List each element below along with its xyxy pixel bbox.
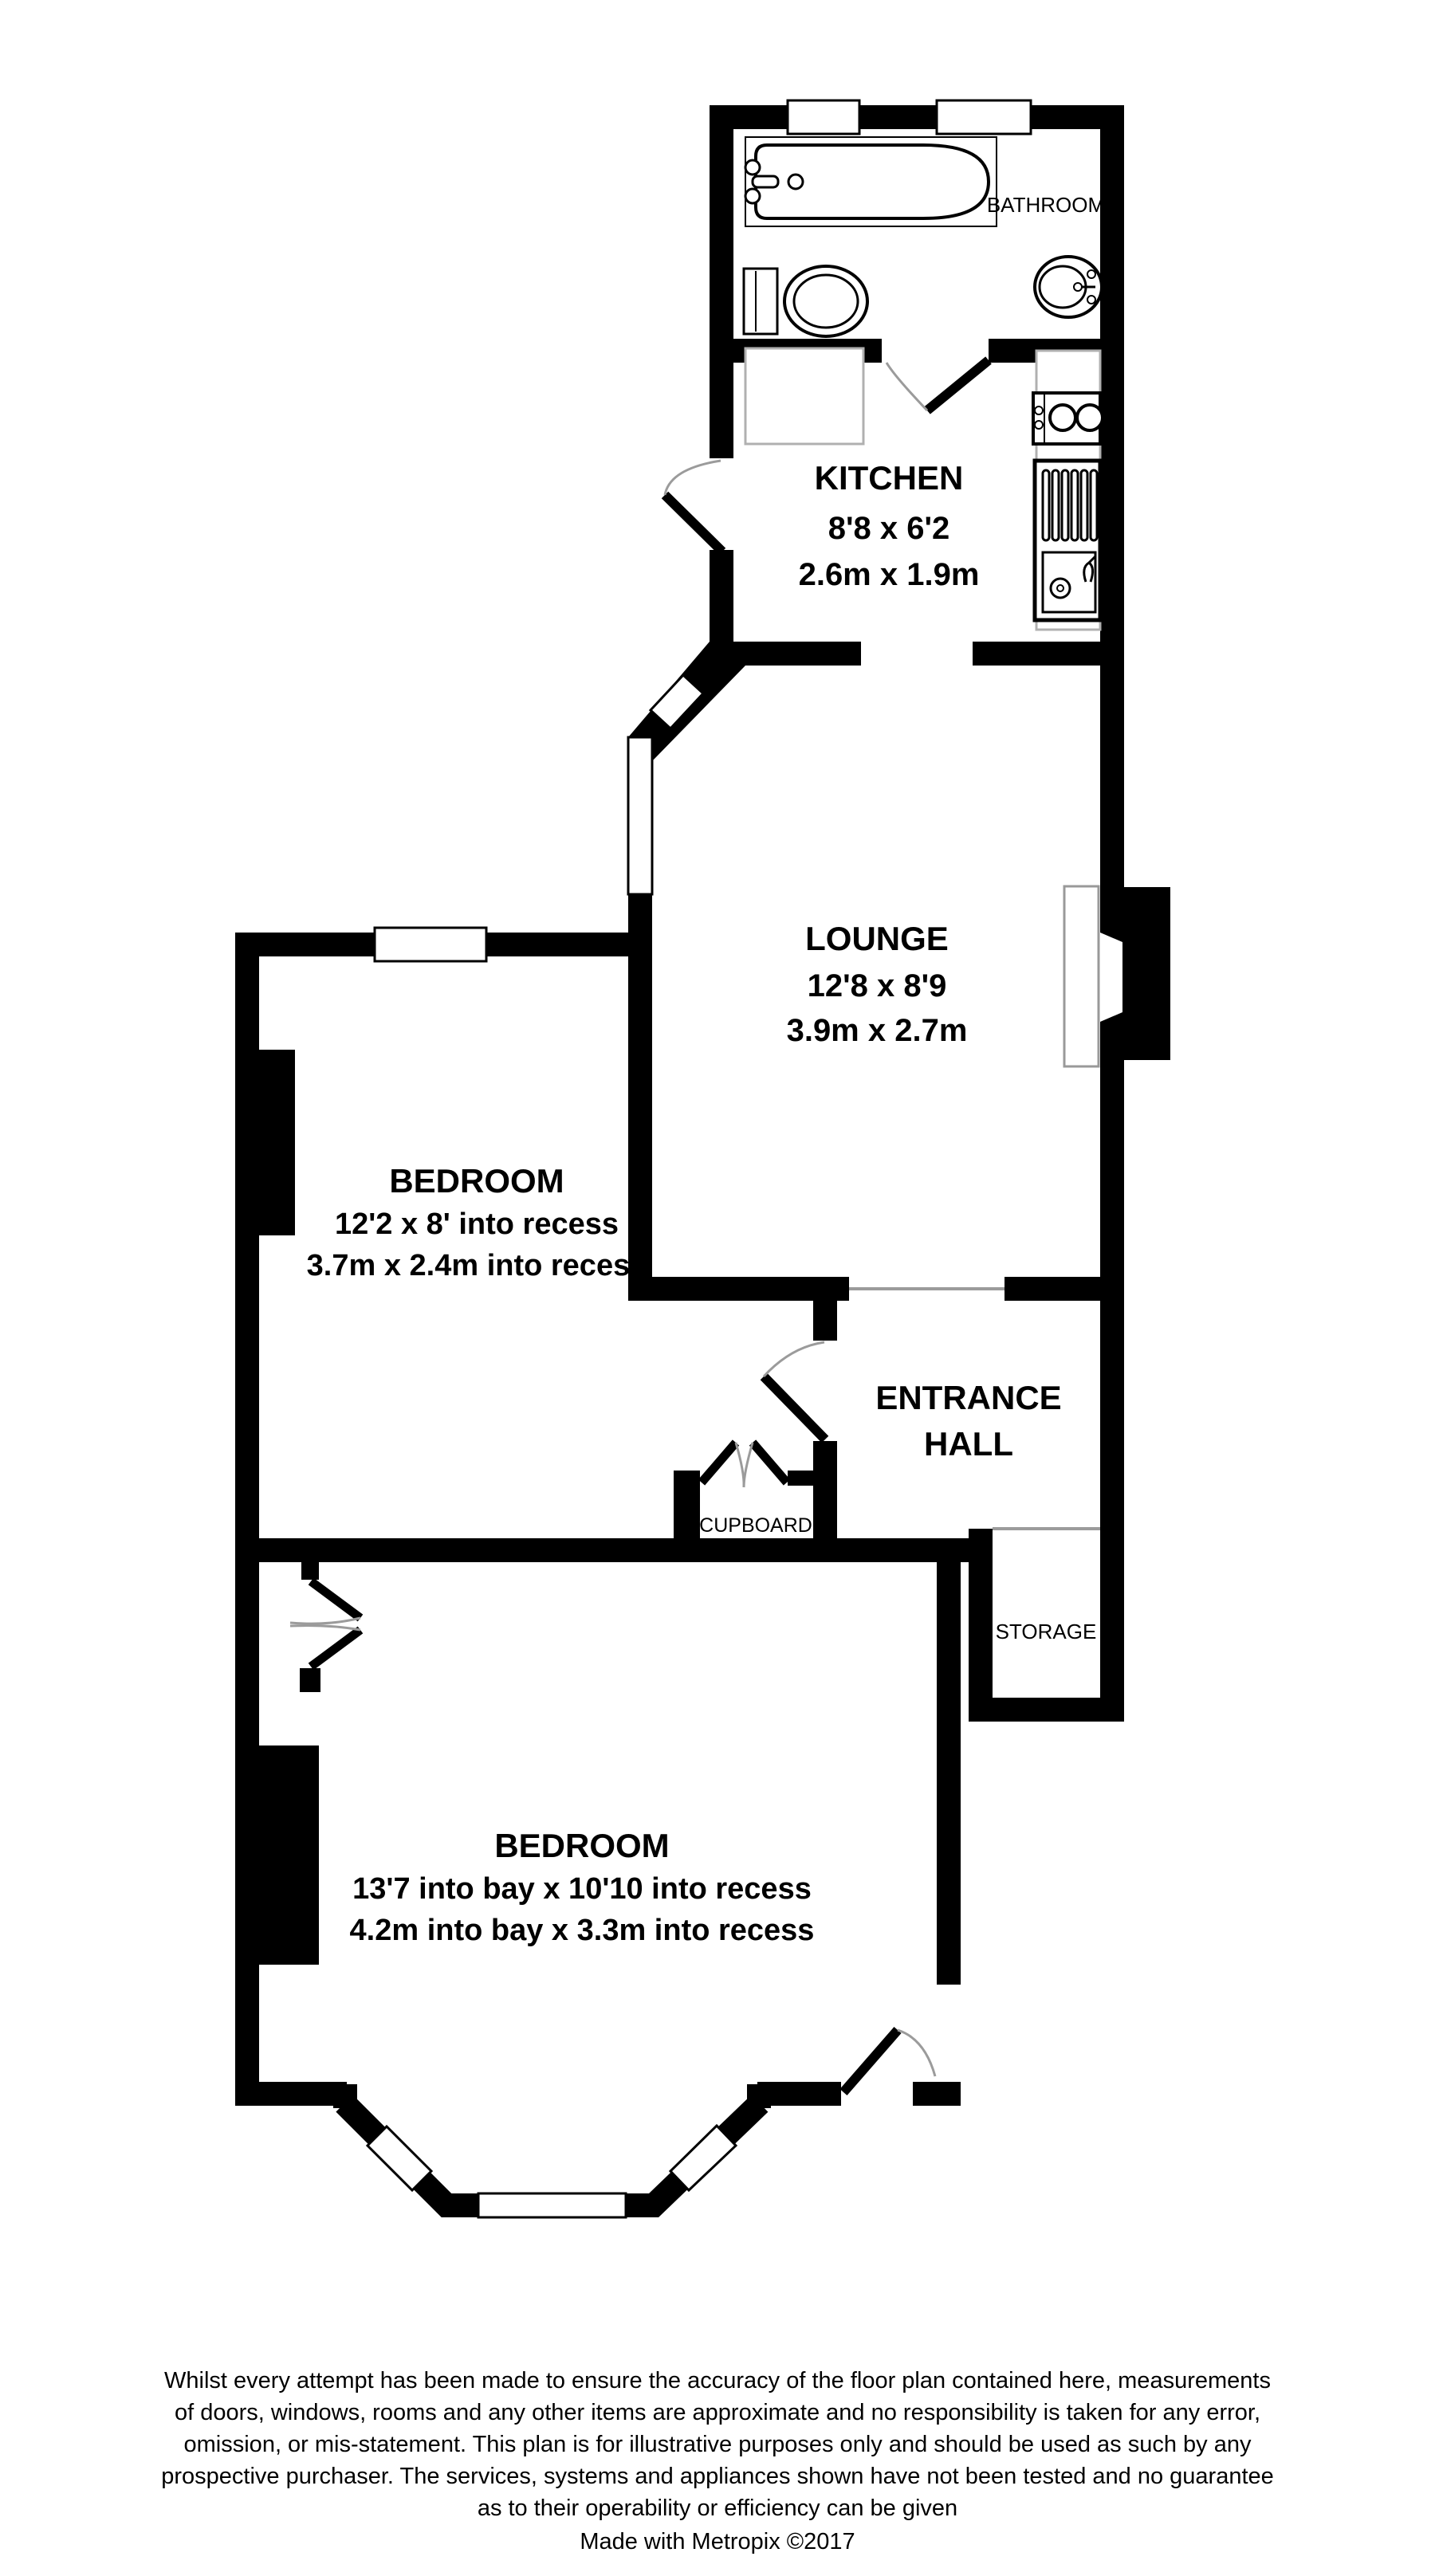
chimney-breast-lounge	[1122, 887, 1170, 1060]
floorplan-page: BATHROOM KITCHEN 8'8 x 6'2 2.6m x 1.9m L…	[0, 0, 1435, 2576]
bathtub-icon	[745, 137, 997, 226]
window-lounge-left	[628, 737, 652, 894]
door-kitchen	[665, 461, 722, 552]
kitchen-unit-worktop	[745, 348, 863, 444]
label-lounge-metric: 3.9m x 2.7m	[787, 1013, 968, 1048]
sink-basin-icon	[1035, 257, 1102, 317]
label-bedroom1-imperial: 12'2 x 8' into recess	[335, 1207, 619, 1241]
wall-lounge-bottom-left	[652, 1277, 849, 1301]
disclaimer-line: of doors, windows, rooms and any other i…	[175, 2400, 1260, 2425]
wall-bedroom2-left-upper	[235, 1562, 259, 1745]
label-bedroom2-imperial: 13'7 into bay x 10'10 into recess	[352, 1872, 812, 1906]
label-kitchen-imperial: 8'8 x 6'2	[828, 511, 949, 546]
label-bedroom1-name: BEDROOM	[389, 1162, 564, 1200]
wall-cupboard-jamb-right	[788, 1471, 813, 1486]
wall-lounge-bottom-right	[1005, 1277, 1100, 1301]
window-bathroom-2	[937, 100, 1031, 134]
label-lounge-imperial: 12'8 x 8'9	[808, 968, 947, 1003]
fireplace-recess	[1100, 933, 1122, 1022]
label-bedroom1-metric: 3.7m x 2.4m into recess	[307, 1249, 647, 1282]
disclaimer-line: Whilst every attempt has been made to en…	[164, 2368, 1271, 2393]
disclaimer-line: as to their operability or efficiency ca…	[478, 2495, 957, 2521]
wall-bay-corner-left	[333, 2084, 357, 2108]
label-cupboard: CUPBOARD	[699, 1514, 812, 1537]
hob-icon	[1033, 393, 1103, 444]
window-bay-left	[368, 2126, 431, 2190]
wall-bedroom2-top	[235, 1538, 969, 1562]
wall-top	[710, 105, 1124, 129]
window-bay-right	[670, 2126, 736, 2190]
wall-kitchen-bottom-right	[973, 642, 1100, 666]
hearth	[1064, 886, 1099, 1066]
label-lounge-name: LOUNGE	[805, 920, 949, 957]
disclaimer-line: omission, or mis-statement. This plan is…	[184, 2432, 1252, 2457]
window-bathroom-1	[788, 100, 859, 134]
toilet-icon	[744, 266, 867, 336]
wall-bedroom2-right	[937, 1562, 961, 1985]
label-hall-line1: ENTRANCE	[875, 1379, 1061, 1416]
metropix-credit: Made with Metropix ©2017	[580, 2529, 855, 2554]
wall-bedroom2-corner	[913, 2082, 961, 2106]
wall-kitchen-bottom-left	[733, 642, 861, 666]
wall-bedroom2-bottom-left	[235, 2082, 347, 2106]
label-hall-line2: HALL	[924, 1425, 1013, 1463]
chimney-breast-bedroom2	[235, 1745, 319, 1965]
window-bay-bottom	[478, 2193, 626, 2217]
wall-storage-bottom	[969, 1698, 1124, 1722]
floorplan: BATHROOM KITCHEN 8'8 x 6'2 2.6m x 1.9m L…	[0, 0, 1435, 2576]
label-bedroom2-metric: 4.2m into bay x 3.3m into recess	[350, 1914, 815, 1947]
label-bathroom: BATHROOM	[987, 193, 1105, 217]
wall-bedroom1-top-b	[486, 933, 652, 956]
wall-right-main	[1100, 105, 1124, 1722]
chimney-breast-bedroom1	[235, 1050, 295, 1235]
window-bedroom1-top	[375, 928, 486, 961]
label-kitchen-name: KITCHEN	[815, 459, 964, 497]
label-bedroom2-name: BEDROOM	[494, 1827, 669, 1864]
wall-bedroom1-top-a	[235, 933, 375, 956]
wall-bedroom1-left	[235, 956, 259, 1538]
wall-left-upper	[710, 105, 733, 458]
closet-jamb-bottom	[300, 1668, 320, 1692]
disclaimer-block: Whilst every attempt has been made to en…	[161, 2368, 1274, 2554]
wall-hall-left-upper	[813, 1301, 837, 1341]
wall-storage-left	[969, 1529, 993, 1722]
door-closet-bedroom2	[290, 1581, 360, 1667]
label-kitchen-metric: 2.6m x 1.9m	[799, 557, 980, 592]
door-bedroom1	[764, 1342, 825, 1439]
bathroom-fixtures	[744, 137, 1102, 336]
label-storage: STORAGE	[996, 1620, 1097, 1643]
closet-jamb-top	[301, 1562, 319, 1580]
wall-bay-corner-right	[747, 2084, 771, 2108]
door-bathroom	[887, 360, 989, 410]
sink-drainer-icon	[1035, 461, 1100, 620]
door-cupboard	[702, 1443, 787, 1487]
disclaimer-line: prospective purchaser. The services, sys…	[161, 2464, 1274, 2489]
